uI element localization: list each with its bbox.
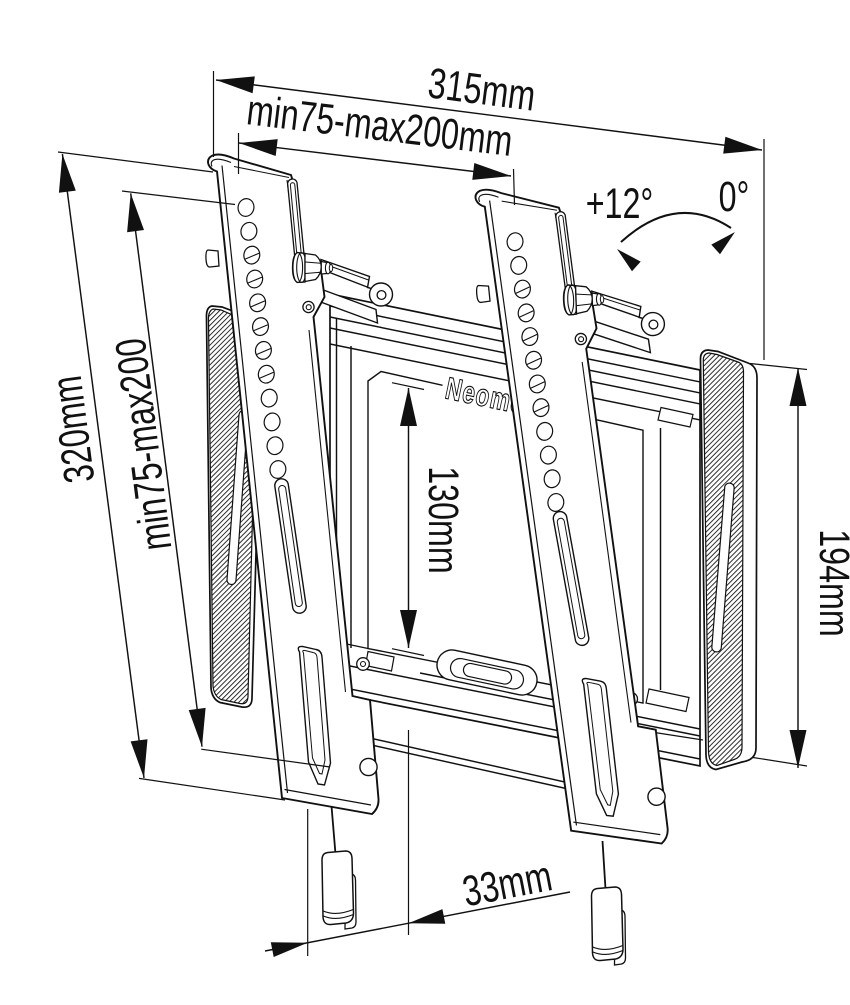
svg-text:0°: 0° <box>719 174 750 222</box>
svg-text:130mm: 130mm <box>419 466 467 574</box>
svg-text:+12°: +12° <box>586 181 654 229</box>
svg-text:194mm: 194mm <box>810 529 850 637</box>
